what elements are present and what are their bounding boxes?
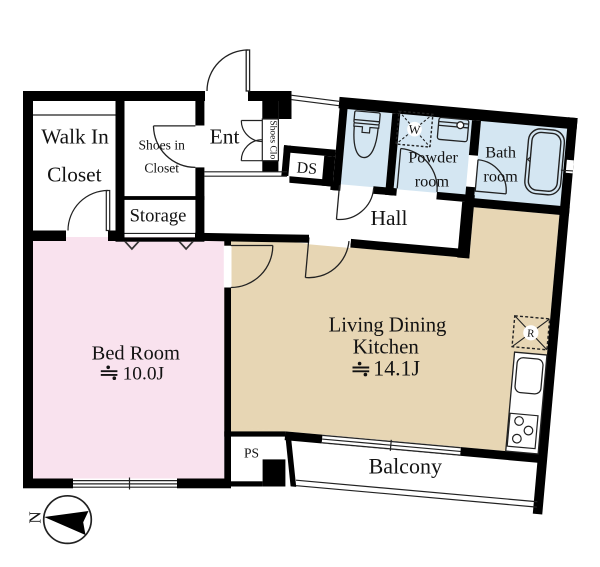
svg-text:Shoes in: Shoes in [138,138,185,153]
svg-text:room: room [415,171,450,190]
svg-text:Balcony: Balcony [369,453,442,478]
svg-text:Living Dining: Living Dining [329,315,447,337]
svg-text:Ent: Ent [210,125,240,149]
svg-text:W: W [408,122,421,137]
svg-text:Hall: Hall [370,206,407,230]
svg-text:Shoes Clo: Shoes Clo [267,120,277,159]
svg-text:10.0J: 10.0J [123,363,165,384]
svg-text:Walk In: Walk In [41,125,109,149]
svg-text:Powder: Powder [408,148,458,167]
svg-text:Storage: Storage [130,205,187,226]
svg-text:Kitchen: Kitchen [353,334,420,358]
svg-text:Closet: Closet [47,163,102,187]
svg-text:PS: PS [244,445,259,460]
svg-text:Closet: Closet [144,161,179,176]
svg-text:Bed Room: Bed Room [92,342,180,364]
svg-text:room: room [483,166,518,185]
svg-text:N: N [26,511,45,523]
svg-text:DS: DS [296,159,318,178]
svg-text:14.1J: 14.1J [373,356,420,380]
svg-text:Bath: Bath [485,143,516,162]
